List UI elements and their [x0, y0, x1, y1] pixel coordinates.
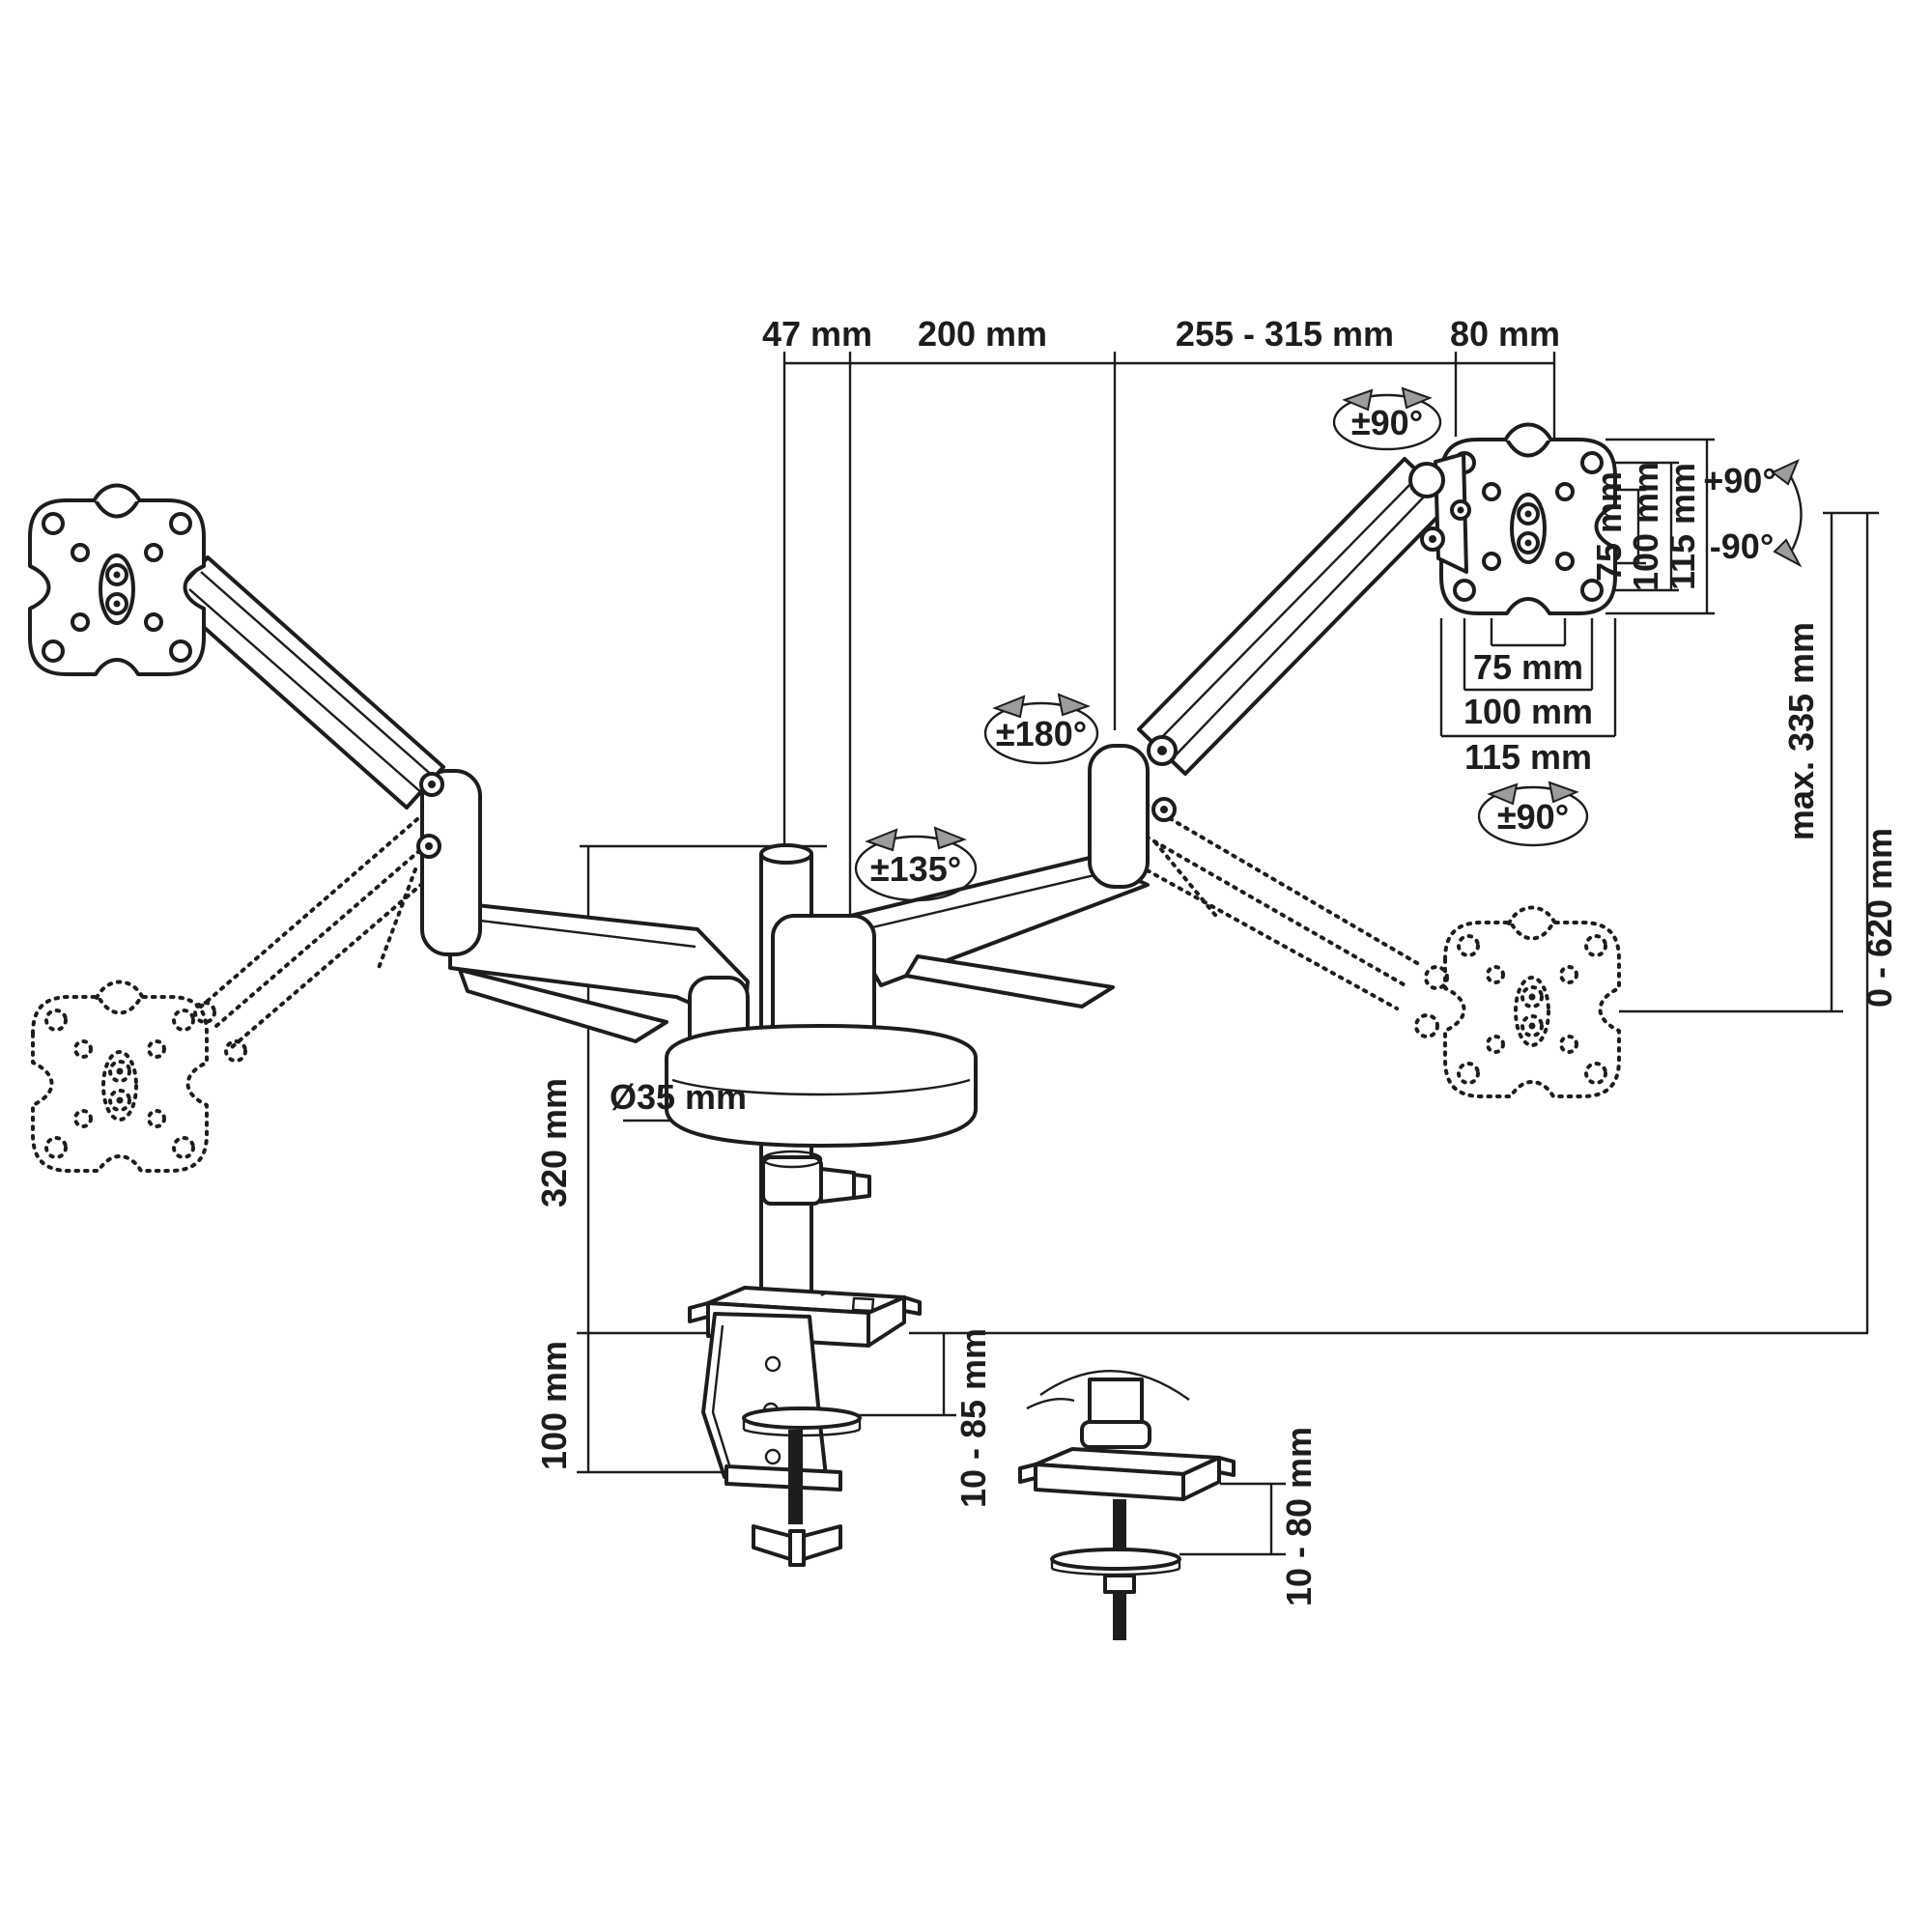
diagram-canvas: 47 mm 200 mm 255 - 315 mm 80 mm ±90° 75 … — [0, 0, 1932, 1932]
dim-320mm: 320 mm — [534, 1078, 574, 1207]
dim-80mm: 80 mm — [1450, 314, 1560, 354]
dim-vesa-h115: 115 mm — [1464, 737, 1592, 777]
monitor-arm-diagram: 47 mm 200 mm 255 - 315 mm 80 mm ±90° 75 … — [0, 0, 1932, 1932]
left-upper-arm — [171, 557, 443, 857]
dim-255-315mm: 255 - 315 mm — [1176, 314, 1394, 354]
rot-plate-90: ±90° — [1497, 797, 1569, 837]
dim-vesa-v75: 75 mm — [1589, 471, 1629, 582]
dim-10-85mm: 10 - 85 mm — [953, 1328, 993, 1508]
grommet-mount-inset — [1020, 1371, 1234, 1640]
vesa-plate-phantom-right — [1445, 908, 1619, 1097]
rot-head-90: ±90° — [1351, 403, 1423, 442]
dim-dia-35mm: Ø35 mm — [610, 1077, 747, 1117]
dim-vesa-v100: 100 mm — [1626, 462, 1665, 591]
rot-tilt-down: -90° — [1710, 526, 1774, 566]
right-upper-arm — [1139, 459, 1451, 820]
vesa-plate-left — [30, 486, 204, 675]
dim-max-335: max. 335 mm — [1781, 622, 1821, 840]
dim-200mm: 200 mm — [918, 314, 1047, 354]
dim-0-620: 0 - 620 mm — [1860, 828, 1899, 1008]
pole-ring-adjuster — [763, 1151, 869, 1204]
vesa-plate-phantom-left — [33, 982, 207, 1172]
rot-elbow-180: ±180° — [996, 714, 1087, 753]
dim-100mm-clamp: 100 mm — [534, 1341, 574, 1470]
desk-clamp — [690, 1288, 920, 1565]
rot-shoulder-135: ±135° — [870, 849, 961, 889]
dim-vesa-v115: 115 mm — [1662, 463, 1702, 590]
dim-47mm: 47 mm — [762, 314, 872, 354]
rot-tilt-up: +90° — [1703, 461, 1776, 500]
dim-vesa-h100: 100 mm — [1463, 692, 1593, 731]
dim-10-80mm: 10 - 80 mm — [1279, 1427, 1319, 1606]
dim-vesa-h75: 75 mm — [1473, 647, 1583, 687]
